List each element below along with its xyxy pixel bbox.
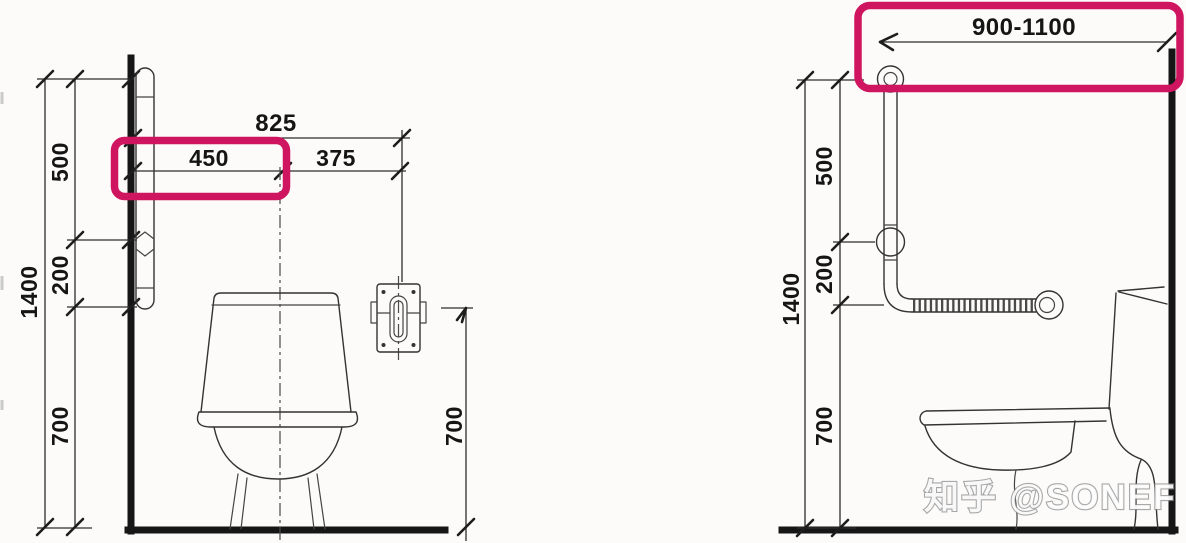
front-dim-1400: 1400 [16, 265, 42, 318]
side-seat [920, 408, 1110, 425]
front-grab-bar [136, 68, 154, 309]
front-view: 1400 500 200 700 825 450 375 [16, 58, 474, 541]
grab-bar-elbow [884, 284, 912, 312]
bowl-curve [214, 427, 342, 479]
side-dim-200: 200 [811, 254, 837, 294]
grab-bar-mid-joint [877, 228, 905, 256]
toilet-dimension-diagram: 1400 500 200 700 825 450 375 [0, 0, 1186, 543]
front-dim-450: 450 [189, 145, 229, 171]
watermark-text: 知乎 @SONEF [924, 478, 1176, 517]
side-bowl [925, 421, 1075, 470]
front-dim-700-right: 700 [441, 406, 467, 446]
front-flush-height-dimension: 700 [441, 308, 474, 541]
pedestal-legs [230, 474, 325, 529]
side-cistern [1109, 287, 1167, 409]
side-bar-length-dimension: 900-1100 [880, 14, 1176, 51]
diagram-page: 1400 500 200 700 825 450 375 [0, 0, 1186, 543]
front-toilet [198, 167, 358, 541]
front-dim-700-left: 700 [47, 406, 73, 446]
flush-plate [371, 276, 426, 360]
side-dim-700: 700 [811, 406, 837, 446]
side-grab-bar [877, 66, 1064, 319]
cistern-outline [201, 293, 351, 412]
watermark: 知乎 @SONEF 知乎 @SONEF [924, 478, 1176, 517]
side-view: 1400 500 200 700 900-1100 [778, 14, 1176, 536]
side-dim-1400: 1400 [778, 272, 804, 325]
side-dim-500: 500 [811, 146, 837, 186]
front-dim-500: 500 [47, 142, 73, 182]
front-dim-375: 375 [316, 145, 356, 171]
front-dim-200: 200 [47, 255, 73, 295]
front-dim-825: 825 [255, 110, 297, 137]
grab-bar-bracket [136, 232, 154, 256]
side-vertical-dimensions: 1400 500 200 700 [778, 72, 884, 536]
seat-band [198, 412, 358, 427]
side-dim-900-1100: 900-1100 [972, 14, 1076, 41]
